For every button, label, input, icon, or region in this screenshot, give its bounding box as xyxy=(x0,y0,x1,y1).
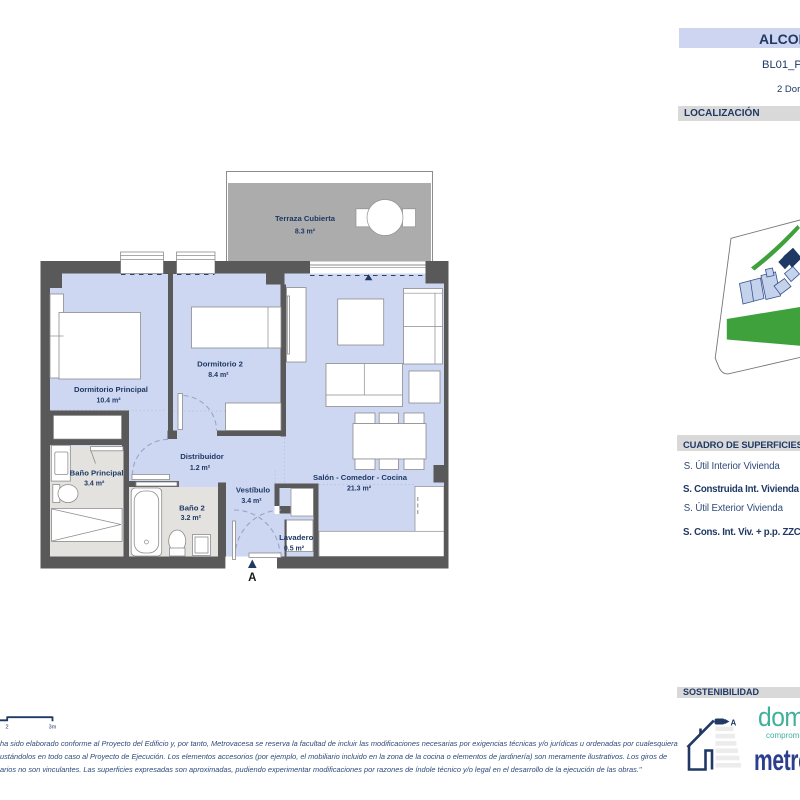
svg-text:3.4 m²: 3.4 m² xyxy=(241,498,262,505)
svg-text:3.4 m²: 3.4 m² xyxy=(84,481,105,488)
svg-text:Baño 2: Baño 2 xyxy=(179,504,205,513)
svg-text:Dormitorio Principal: Dormitorio Principal xyxy=(74,385,148,394)
svg-text:1.2 m²: 1.2 m² xyxy=(190,465,211,472)
svg-text:Salón - Comedor - Cocina: Salón - Comedor - Cocina xyxy=(313,473,408,482)
svg-text:3.2 m²: 3.2 m² xyxy=(181,515,202,522)
svg-text:A: A xyxy=(248,572,256,584)
svg-text:8.3 m²: 8.3 m² xyxy=(295,229,316,236)
svg-text:8.4 m²: 8.4 m² xyxy=(208,372,229,379)
svg-text:Distribuidor: Distribuidor xyxy=(180,452,224,461)
svg-text:Dormitorio 2: Dormitorio 2 xyxy=(197,360,243,369)
svg-text:0.5 m²: 0.5 m² xyxy=(284,546,305,553)
svg-text:Vestíbulo: Vestíbulo xyxy=(236,486,270,495)
svg-text:A: A xyxy=(731,718,737,727)
svg-text:Terraza Cubierta: Terraza Cubierta xyxy=(275,214,336,223)
svg-text:3m: 3m xyxy=(49,725,57,731)
svg-text:Baño Principal: Baño Principal xyxy=(70,468,124,477)
svg-text:2: 2 xyxy=(5,725,8,731)
svg-text:Lavadero: Lavadero xyxy=(279,533,313,542)
svg-text:21.3 m²: 21.3 m² xyxy=(347,486,372,493)
svg-text:10.4 m²: 10.4 m² xyxy=(96,397,121,404)
